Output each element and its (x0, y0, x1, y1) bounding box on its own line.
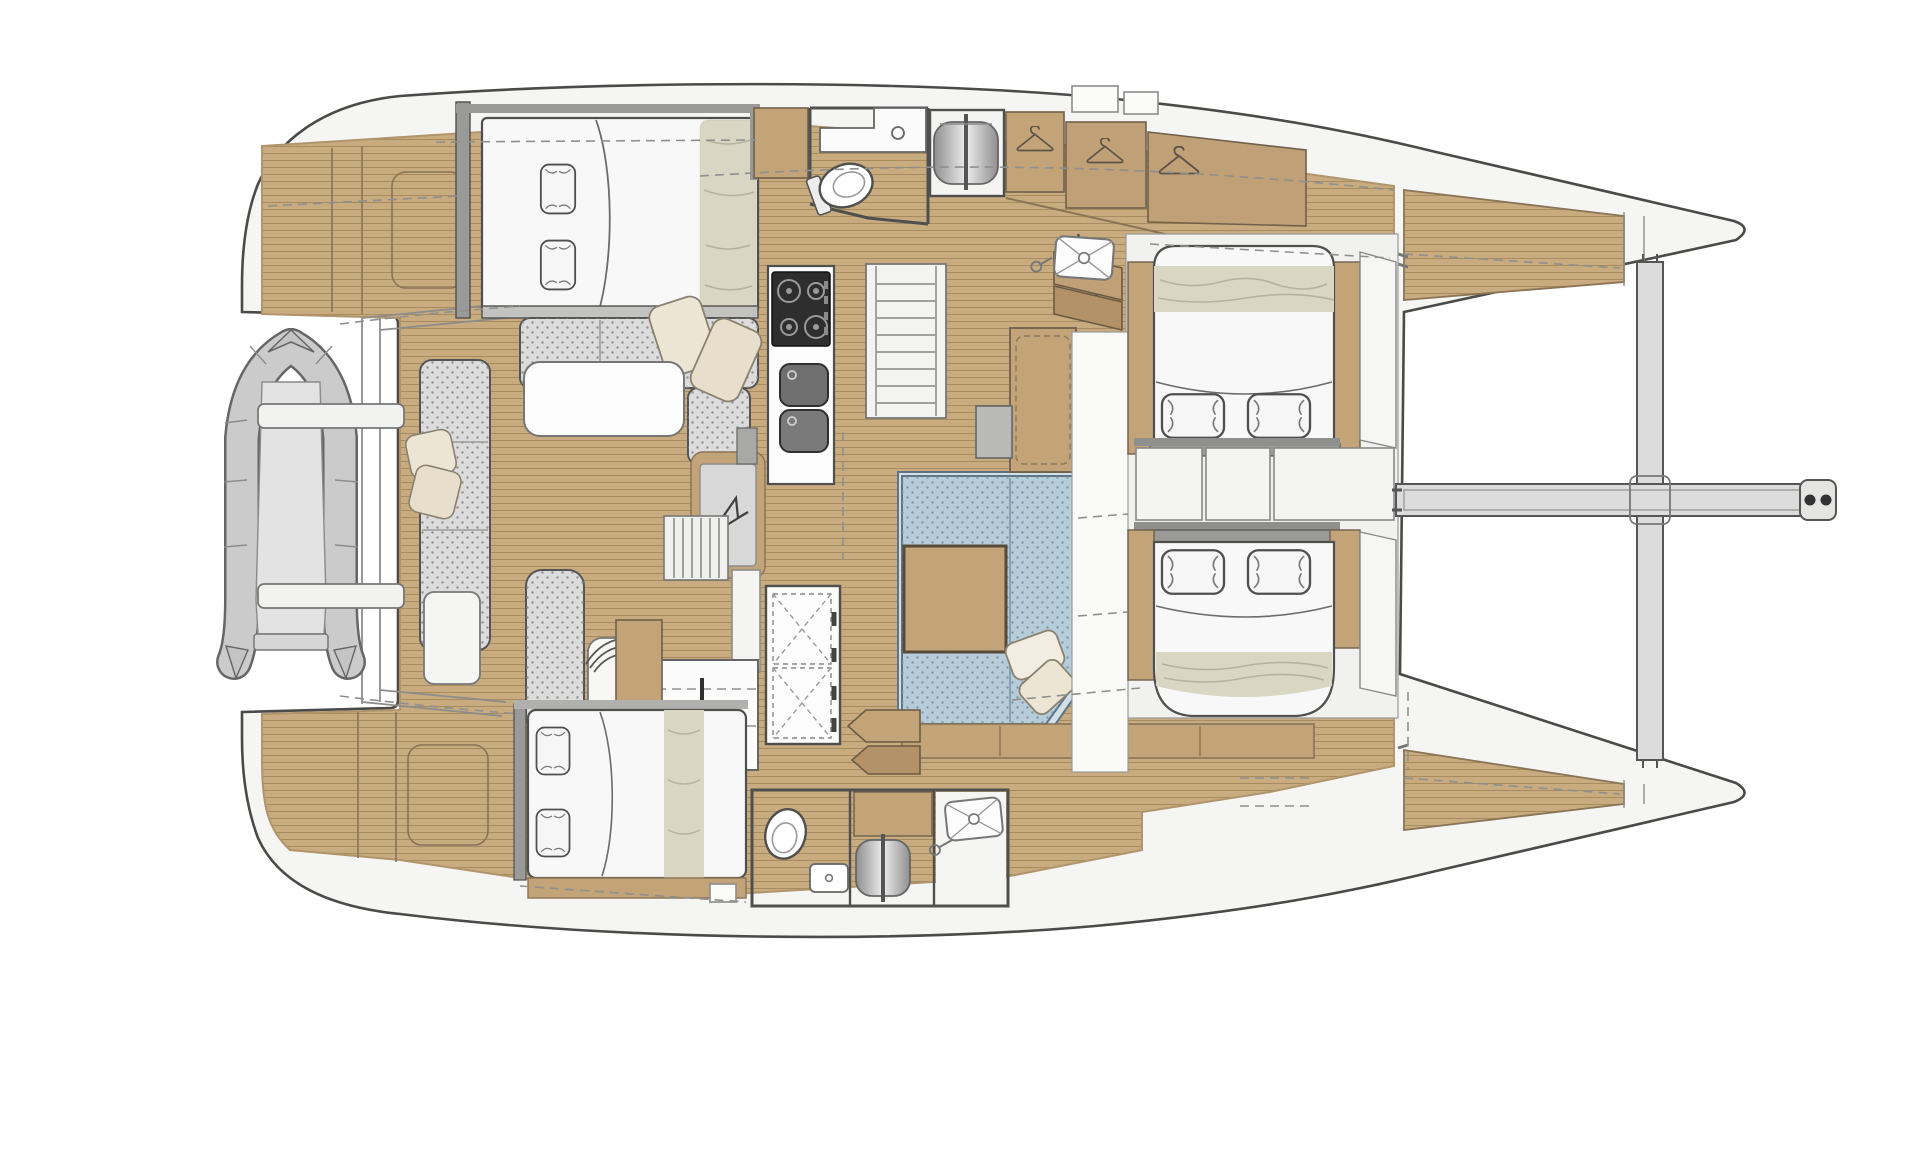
hanging-locker (1066, 122, 1146, 208)
deck-hatch (1124, 92, 1158, 114)
pillow (1248, 394, 1310, 438)
burner-dot (787, 325, 791, 329)
port-shower (930, 110, 1004, 196)
bowsprit (1396, 484, 1810, 516)
pillow (1248, 550, 1310, 594)
salon-table (904, 546, 1006, 652)
berth-head-bar (1150, 530, 1340, 542)
galley (768, 266, 834, 484)
berth-duvet (1156, 652, 1332, 697)
head-sink (810, 864, 848, 892)
davit-arm-aft (258, 404, 404, 428)
owner-cabin (456, 102, 760, 318)
galley-sink-1 (780, 364, 828, 406)
dinette-table (524, 362, 684, 436)
appliance-box (976, 406, 1012, 458)
cabin-top-wall (514, 700, 748, 709)
bench-pad (424, 592, 480, 684)
mullion-post (737, 428, 757, 464)
cabinet-box (1274, 448, 1394, 520)
burner-dot (787, 289, 791, 293)
starboard-forward-berth-group (1128, 530, 1360, 716)
anchor-roller (1805, 495, 1816, 506)
pillow (1162, 394, 1224, 438)
window-mullion (732, 570, 760, 672)
cabinet-body (766, 586, 840, 744)
starboard-aft-berth-group (514, 700, 748, 898)
forward-walkway (1072, 332, 1128, 772)
cabin-top-wall (456, 104, 760, 113)
cabin-bulkhead (514, 704, 526, 880)
sideboard-body (1010, 328, 1076, 472)
pillow (537, 728, 570, 775)
burner-dot (814, 325, 818, 329)
pillow (537, 810, 570, 857)
hull-locker (616, 620, 662, 708)
x-cabinet (766, 586, 840, 744)
anchor-roller (1821, 495, 1832, 506)
cabinet-box (1136, 448, 1202, 520)
galley-sink-2 (780, 410, 828, 452)
berth-flank (1128, 530, 1154, 680)
shower-tray (944, 797, 1003, 841)
berth-flank (1128, 262, 1154, 454)
port-forward-berth-group (1128, 246, 1360, 456)
cabinet-rail (1134, 522, 1340, 530)
pillow (541, 241, 575, 290)
cabinet-rail (1134, 438, 1340, 446)
companionway-port (866, 264, 946, 418)
bow-structure (1392, 254, 1836, 768)
deck-hatch (710, 884, 736, 902)
blanket (664, 710, 704, 878)
cabin-bulkhead (456, 102, 470, 318)
starboard-shower-tray (944, 797, 1003, 841)
davit-arm-fwd (258, 584, 404, 608)
step-line (362, 318, 380, 704)
berth-foot-bar (482, 306, 758, 318)
head-cabinet (754, 108, 808, 178)
head-locker (854, 792, 932, 836)
pillow (1162, 550, 1224, 594)
shower-tray (1054, 236, 1115, 280)
pillow (541, 165, 575, 214)
blanket (700, 120, 756, 312)
hanging-locker (1006, 112, 1064, 192)
stair-well (866, 264, 946, 418)
catamaran-floor-plan (0, 0, 1920, 1151)
dinghy-transom (254, 634, 328, 650)
deck-hatch (1072, 86, 1118, 112)
cabinet-box (1206, 448, 1270, 520)
step (852, 746, 920, 774)
dinghy (224, 330, 404, 678)
floor-plan-canvas (0, 0, 1920, 1151)
companionway-starboard (664, 516, 728, 580)
berth-cabinets (1134, 438, 1394, 530)
burner-dot (814, 289, 818, 293)
